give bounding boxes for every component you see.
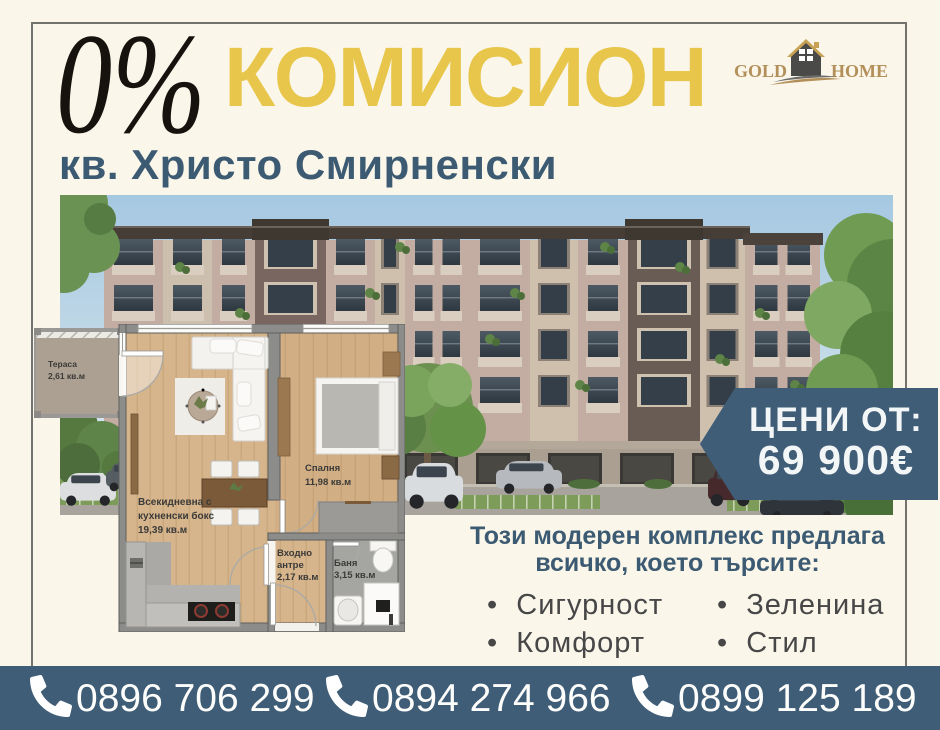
svg-text:GOLD: GOLD: [734, 61, 787, 81]
svg-text:Всекидневна с: Всекидневна с: [138, 497, 212, 508]
svg-text:антре: антре: [277, 560, 304, 571]
svg-text:кухненски бокс: кухненски бокс: [138, 510, 215, 522]
svg-text:2,61 кв.м: 2,61 кв.м: [48, 371, 85, 381]
svg-text:19,39 кв.м: 19,39 кв.м: [138, 525, 187, 536]
svg-text:69 900€: 69 900€: [758, 437, 915, 483]
svg-text:Баня: Баня: [334, 558, 357, 569]
svg-text:11,98 кв.м: 11,98 кв.м: [305, 477, 351, 488]
svg-text:Тераса: Тераса: [48, 359, 77, 369]
svg-text:Входно: Входно: [277, 548, 312, 559]
svg-text:2,17 кв.м: 2,17 кв.м: [277, 572, 318, 583]
svg-text:HOME: HOME: [831, 61, 888, 81]
svg-text:3,15 кв.м: 3,15 кв.м: [334, 570, 375, 581]
svg-text:Спалня: Спалня: [305, 463, 340, 474]
svg-text:ЦЕНИ ОТ:: ЦЕНИ ОТ:: [749, 401, 923, 439]
